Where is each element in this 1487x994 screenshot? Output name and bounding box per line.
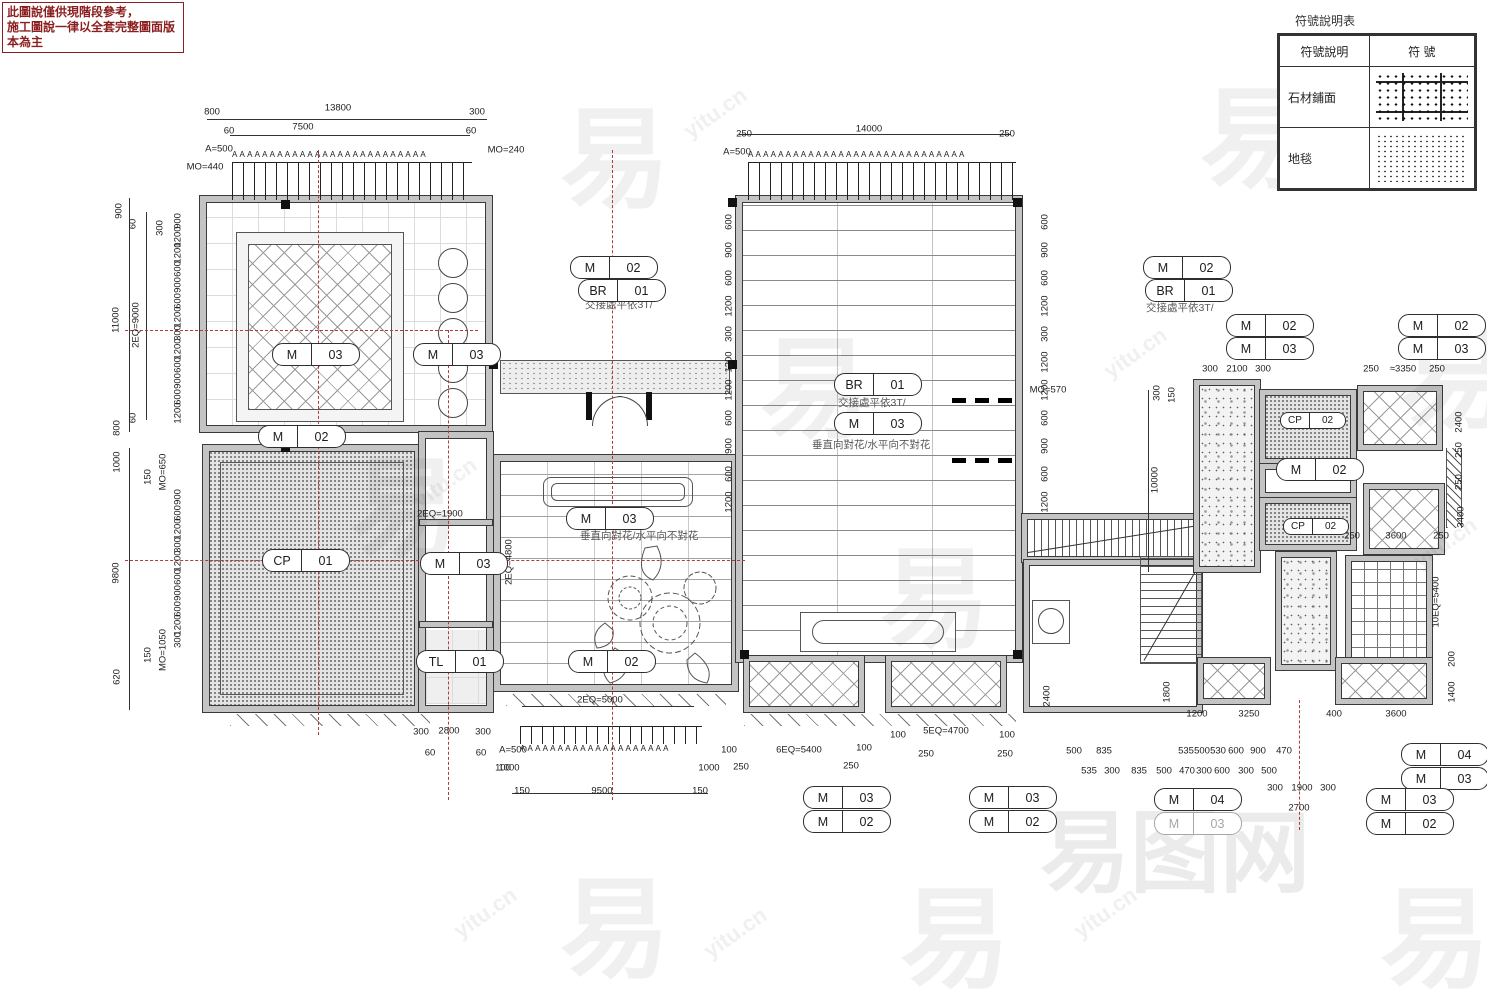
dimension-label: 300 (475, 727, 491, 738)
callout-number: 03 (1406, 789, 1453, 810)
dimension-label: 835 (1131, 766, 1147, 777)
dimension-label: 5EQ=4700 (923, 726, 969, 737)
dimension-label: 900 (724, 242, 735, 258)
callout-prefix: M (970, 811, 1009, 832)
callout-number: 01 (618, 280, 665, 301)
carpet-area-cp02-lower (1260, 498, 1356, 550)
dimension-label: MO=240 (488, 145, 525, 156)
material-callout: M03 (1226, 337, 1314, 360)
callout-prefix: M (1155, 813, 1194, 834)
watermark-text: yitu.cn (1069, 882, 1142, 944)
callout-prefix: M (1144, 257, 1183, 278)
callout-prefix: M (1402, 768, 1441, 789)
dimension-label: 900 (724, 438, 735, 454)
callout-number: 03 (1441, 768, 1487, 789)
symbol-legend-table: 符號說明 符 號 石材鋪面 地毯 (1277, 33, 1477, 191)
dimension-label: 250 (733, 762, 749, 773)
column-marker (728, 360, 737, 369)
centerline-vertical (612, 150, 613, 800)
material-callout: BR01 (578, 279, 666, 302)
centerline-vertical (318, 150, 319, 735)
dimension-label: 600 (1040, 410, 1051, 426)
threshold-room (1260, 464, 1356, 498)
callout-number: 04 (1441, 744, 1487, 765)
callout-prefix: M (804, 811, 843, 832)
dimension-label: 600 (173, 357, 184, 373)
dimension-label: MO=440 (187, 162, 224, 173)
warning-note-box: 此圖說僅供現階段參考， 施工圖說一律以全套完整圖面版本為主 (2, 2, 184, 53)
legend-header-symbol: 符 號 (1369, 36, 1474, 67)
dimension-label: 250 (1363, 364, 1379, 375)
dimension-label: 300 (173, 537, 184, 553)
stone-mat-upper-right (1358, 386, 1442, 450)
material-callout: M03 (803, 786, 891, 809)
dimension-label: 620 (112, 669, 123, 685)
dimension-label: 150 (143, 469, 154, 485)
dimension-label: ≈3350 (1390, 364, 1416, 375)
dimension-label: 900 (173, 489, 184, 505)
dimension-label: 250 (918, 749, 934, 760)
dimension-label: 470 (1276, 746, 1292, 757)
elevator-block (1346, 556, 1432, 666)
dimension-label: 250 (997, 749, 1013, 760)
watermark-text: yitu.cn (1099, 322, 1172, 384)
dimension-label: 200 (1447, 651, 1458, 667)
dimension-label: 1000 (698, 763, 719, 774)
center-ceiling-cove-inner (551, 483, 685, 501)
edge-serration (744, 714, 1016, 726)
warning-line-2: 施工圖說一律以全套完整圖面版本為主 (7, 20, 179, 50)
watermark-text: 易 (900, 850, 1010, 994)
callout-prefix: M (1227, 338, 1266, 359)
material-callout: M03 (1366, 788, 1454, 811)
dimension-label: 100 (856, 743, 872, 754)
dimension-label: MO=570 (1030, 385, 1067, 396)
dimension-line (230, 135, 470, 136)
dimension-label: 300 (1255, 364, 1271, 375)
dimension-label: 100 (890, 730, 906, 741)
dimension-line (522, 706, 694, 707)
ceiling-circle-fixture (438, 353, 468, 383)
watermark-text: 易 (560, 840, 670, 994)
carpet-room-border-inlay (220, 462, 404, 695)
stone-mat-bottom-left (1198, 658, 1270, 704)
tick-comb-top-right (748, 162, 1016, 200)
dimension-label: 600 (173, 569, 184, 585)
ceiling-circle-fixture (438, 283, 468, 313)
dimension-label: 1000 (498, 763, 519, 774)
dimension-label: 900 (1040, 242, 1051, 258)
material-callout: M02 (1143, 256, 1231, 279)
track-marks (952, 458, 1016, 463)
dimension-label: 300 (1320, 783, 1336, 794)
entry-mat-left (744, 656, 864, 712)
dimension-label: MO=1050 (158, 629, 169, 671)
dimension-line (129, 198, 130, 432)
dimension-label: 900 (173, 277, 184, 293)
dimension-line (739, 134, 1011, 135)
dimension-label: 600 (1214, 766, 1230, 777)
corridor-cross-wall (420, 622, 492, 627)
peony-flower-drawing (575, 528, 735, 688)
corridor-cross-wall (420, 520, 492, 525)
dimension-line (146, 212, 147, 420)
callout-prefix: M (1367, 813, 1406, 834)
dimension-label: 10000 (1150, 467, 1161, 493)
column-marker (740, 650, 749, 659)
material-callout: M03 (1398, 337, 1486, 360)
material-callout: BR01 (1145, 279, 1233, 302)
dimension-label: 3600 (1385, 709, 1406, 720)
dimension-label: 7500 (292, 122, 313, 133)
dimension-label: 600 (1040, 214, 1051, 230)
hatch-wall-strip (1446, 448, 1462, 528)
material-callout: M02 (803, 810, 891, 833)
dimension-label: 1200 (1040, 379, 1051, 400)
callout-prefix: M (1399, 338, 1438, 359)
dimension-label: 2EQ=9000 (131, 302, 142, 348)
tick-letter-band: AAAAAAAAAAAAAAAAAAAA (520, 744, 702, 753)
dimension-label: 300 (469, 107, 485, 118)
callout-prefix: M (1402, 744, 1441, 765)
dimension-label: 1200 (173, 338, 184, 359)
tl01-tile-area (426, 630, 486, 704)
tick-comb-bottom (520, 726, 702, 744)
column-marker (281, 443, 290, 452)
dimension-label: 400 (1326, 709, 1342, 720)
dimension-label: 600 (173, 293, 184, 309)
dimension-label: 3250 (1238, 709, 1259, 720)
dimension-label: 530 (1210, 746, 1226, 757)
dimension-label: 1200 (1040, 295, 1051, 316)
watermark-text: 易 (1380, 850, 1487, 994)
track-marks (952, 398, 1016, 403)
callout-prefix: M (1399, 315, 1438, 336)
dimension-label: 300 (1238, 766, 1254, 777)
dimension-label: 600 (1040, 270, 1051, 286)
tick-letter-band: AAAAAAAAAAAAAAAAAAAAAAAAAAAAA (748, 150, 1016, 159)
column-marker (281, 200, 290, 209)
door-jamb (646, 392, 652, 420)
dimension-label: 900 (1040, 438, 1051, 454)
callout-number: 02 (1406, 813, 1453, 834)
dimension-line (207, 119, 487, 120)
stone-mat-bottom-right (1336, 658, 1432, 704)
dimension-label: 600 (173, 601, 184, 617)
dimension-label: 900 (173, 213, 184, 229)
callout-prefix: BR (1146, 280, 1185, 301)
callout-number: 02 (1009, 811, 1056, 832)
dimension-label: 250 (843, 761, 859, 772)
dimension-label: 1900 (1291, 783, 1312, 794)
dimension-label: 13800 (325, 103, 351, 114)
callout-prefix: M (1367, 789, 1406, 810)
callout-prefix: M (1155, 789, 1194, 810)
dimension-label: 2400 (1454, 411, 1465, 432)
dimension-label: 1400 (1447, 681, 1458, 702)
dimension-label: 300 (173, 632, 184, 648)
dimension-label: 100 (721, 745, 737, 756)
tick-letter-band: AAAAAAAAAAAAAAAAAAAAAAAAAA (232, 150, 472, 159)
entry-mat-right (886, 656, 1006, 712)
dimension-label: 900 (173, 585, 184, 601)
dimension-label: 300 (724, 326, 735, 342)
dimension-label: 6EQ=5400 (776, 745, 822, 756)
callout-number: 02 (1438, 315, 1485, 336)
hall-entry-recess-inner (812, 620, 944, 644)
column-circle (1038, 608, 1064, 634)
dimension-label: 100 (495, 763, 511, 774)
dimension-label: 300 (1267, 783, 1283, 794)
dimension-label: 150 (514, 786, 530, 797)
edge-serration (230, 714, 430, 726)
dimension-label: 150 (692, 786, 708, 797)
edge-serration (506, 694, 726, 706)
ceiling-circle-fixture (438, 388, 468, 418)
centerline-horizontal (125, 560, 745, 561)
door-jamb (586, 392, 592, 420)
dimension-label: A=500 (499, 745, 527, 756)
door-swing-arc (618, 396, 648, 426)
dimension-line (1148, 390, 1149, 572)
watermark-text: 易 (560, 70, 670, 230)
dimension-label: 600 (1040, 466, 1051, 482)
dimension-label: 1200 (173, 518, 184, 539)
dimension-label: 1200 (173, 614, 184, 635)
dimension-label: 150 (143, 647, 154, 663)
legend-title: 符號說明表 (1295, 12, 1355, 29)
callout-number: 02 (1183, 257, 1230, 278)
ceiling-circle-fixture (438, 248, 468, 278)
left-room-diamond-ceiling (248, 244, 392, 410)
dimension-line (129, 448, 130, 710)
watermark-text: 易图网 (1040, 780, 1310, 910)
stone-mat-mid-right (1364, 484, 1444, 554)
dimension-label: MO=650 (158, 454, 169, 491)
centerline-vertical (1299, 700, 1300, 830)
dimension-label: 300 (173, 325, 184, 341)
callout-prefix: M (1227, 315, 1266, 336)
callout-number: 02 (610, 257, 657, 278)
legend-row-stone: 石材鋪面 (1280, 67, 1475, 128)
dimension-label: 600 (724, 270, 735, 286)
dimension-label: 470 (1179, 766, 1195, 777)
dimension-label: 600 (173, 389, 184, 405)
callout-number: 03 (1194, 813, 1241, 834)
material-callout: M04 (1154, 788, 1242, 811)
floral-carpet-strip-lower (1276, 552, 1336, 670)
dimension-label: 250 (1429, 364, 1445, 375)
dimension-label: 500 (1156, 766, 1172, 777)
material-callout: M03 (1401, 767, 1487, 790)
material-callout: M02 (1226, 314, 1314, 337)
dimension-label: 1200 (173, 226, 184, 247)
callout-note: 交接處平依3T/ (585, 297, 653, 312)
dimension-label: 600 (724, 410, 735, 426)
dimension-label: 1200 (173, 242, 184, 263)
dimension-label: 1200 (1040, 351, 1051, 372)
callout-number: 02 (843, 811, 890, 832)
dimension-label: 9500 (591, 786, 612, 797)
dimension-label: 11000 (111, 307, 122, 333)
dimension-line (512, 793, 708, 794)
legend-label-carpet: 地毯 (1280, 128, 1370, 189)
dimension-label: 60 (476, 748, 487, 759)
callout-number: 02 (1266, 315, 1313, 336)
carpet-swatch (1376, 134, 1468, 182)
column-marker (1013, 198, 1022, 207)
dimension-label: 1000 (112, 451, 123, 472)
dimension-label: 1200 (173, 550, 184, 571)
dimension-label: 300 (1104, 766, 1120, 777)
material-callout: M02 (570, 256, 658, 279)
column-marker (1013, 650, 1022, 659)
dimension-label: 535 (1178, 746, 1194, 757)
dimension-label: 500 (1194, 746, 1210, 757)
stone-paving-swatch (1376, 73, 1468, 121)
dimension-label: 600 (724, 214, 735, 230)
watermark-text: yitu.cn (699, 902, 772, 964)
carpet-area-cp02-upper (1260, 390, 1356, 464)
dimension-label: 300 (1196, 766, 1212, 777)
callout-number: 03 (1009, 787, 1056, 808)
dimension-label: 800 (204, 107, 220, 118)
callout-number: 03 (1438, 338, 1485, 359)
callout-number: 03 (1266, 338, 1313, 359)
dimension-label: 900 (1250, 746, 1266, 757)
dimension-label: 300 (1202, 364, 1218, 375)
dimension-label: 1200 (173, 306, 184, 327)
dimension-label: 1200 (1040, 491, 1051, 512)
tick-comb-top-left (232, 162, 472, 200)
entry-paving-band (500, 360, 730, 394)
dimension-label: A=500 (723, 147, 751, 158)
callout-prefix: M (970, 787, 1009, 808)
legend-row-carpet: 地毯 (1280, 128, 1475, 189)
floral-carpet-strip-upper (1194, 380, 1260, 572)
dimension-label: 2800 (438, 726, 459, 737)
watermark-text: yitu.cn (449, 882, 522, 944)
callout-number: 03 (843, 787, 890, 808)
callout-number: 04 (1194, 789, 1241, 810)
warning-line-1: 此圖說僅供現階段參考， (7, 5, 179, 20)
material-callout: M03 (969, 786, 1057, 809)
material-callout: M02 (969, 810, 1057, 833)
callout-note: 交接處平依3T/ (1146, 300, 1214, 315)
callout-prefix: M (804, 787, 843, 808)
dimension-label: 2100 (1226, 364, 1247, 375)
dimension-label: 600 (173, 261, 184, 277)
legend-label-stone: 石材鋪面 (1280, 67, 1370, 128)
dimension-label: 500 (1066, 746, 1082, 757)
material-callout: M02 (1398, 314, 1486, 337)
dimension-label: 100 (999, 730, 1015, 741)
dimension-label: A=500 (205, 144, 233, 155)
legend-header-description: 符號說明 (1280, 36, 1370, 67)
dimension-label: 835 (1096, 746, 1112, 757)
dimension-label: 500 (1261, 766, 1277, 777)
dimension-label: 300 (1040, 326, 1051, 342)
dimension-label: 9800 (111, 562, 122, 583)
column-marker (489, 360, 498, 369)
dimension-label: 1200 (173, 402, 184, 423)
ceiling-circle-fixture (438, 318, 468, 348)
material-callout: M03 (1154, 812, 1242, 835)
dimension-label: 800 (112, 420, 123, 436)
callout-prefix: M (571, 257, 610, 278)
floorplan-sheet: 此圖說僅供現階段參考， 施工圖說一律以全套完整圖面版本為主 符號說明表 符號說明… (0, 0, 1487, 994)
dimension-label: 300 (1152, 385, 1163, 401)
callout-number: 01 (1185, 280, 1232, 301)
centerline-vertical (448, 330, 449, 800)
column-marker (728, 198, 737, 207)
dimension-label: 10EQ=5400 (1431, 577, 1442, 628)
right-hall-room (736, 196, 1022, 662)
dimension-label: 1200 (724, 295, 735, 316)
material-callout: M02 (1366, 812, 1454, 835)
material-callout: M04 (1401, 743, 1487, 766)
dimension-label: 900 (173, 373, 184, 389)
dimension-label: 535 (1081, 766, 1097, 777)
centerline-horizontal (125, 330, 478, 331)
dimension-label: 60 (425, 748, 436, 759)
dimension-label: 14000 (856, 124, 882, 135)
dimension-label: 150 (1167, 387, 1178, 403)
dimension-label: 300 (155, 220, 166, 236)
dimension-label: 600 (1228, 746, 1244, 757)
dimension-label: 900 (114, 203, 125, 219)
dimension-label: 300 (413, 727, 429, 738)
dimension-label: 600 (173, 505, 184, 521)
